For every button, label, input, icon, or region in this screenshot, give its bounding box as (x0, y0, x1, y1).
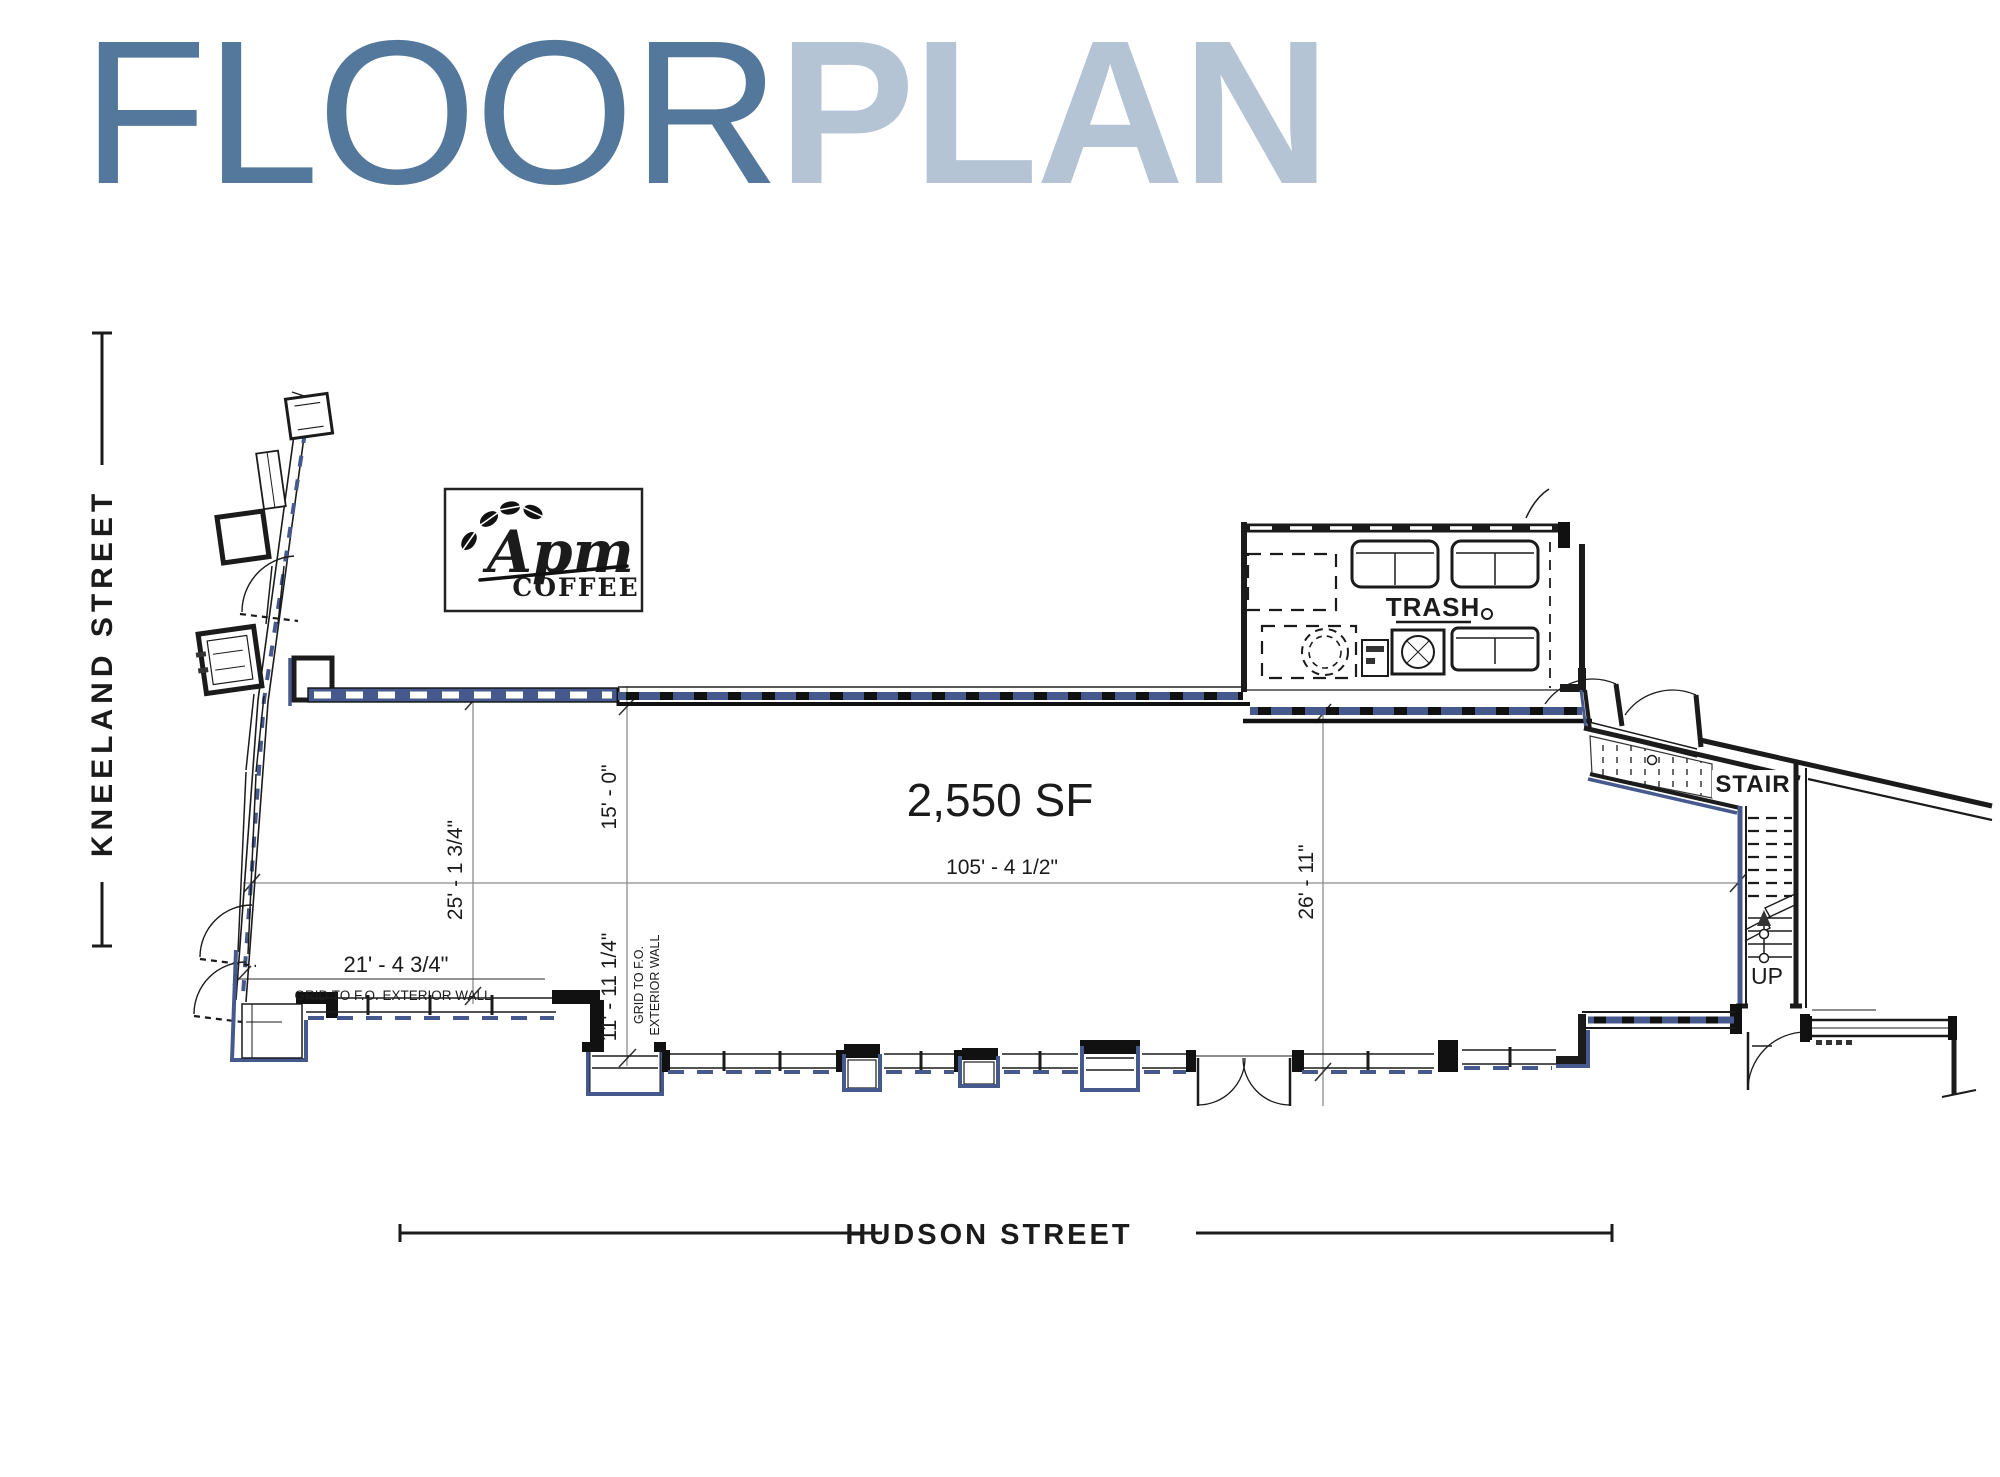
left-wall-mullion-piece (256, 451, 286, 510)
hudson-street-line-right (1196, 1224, 1612, 1242)
hudson-street-line-left (400, 1224, 882, 1242)
right-end-tick (1942, 1090, 1976, 1097)
w6-lines (1142, 1054, 1188, 1068)
dim-21ft: 21' - 4 3/4" (344, 952, 449, 977)
grid-note-v-line1: GRID TO F.O. (632, 946, 646, 1024)
kneeland-street-label: KNEELAND STREET (86, 489, 119, 857)
dim-25ft: 25' - 1 3/4" (444, 820, 467, 920)
left-wall-window-top (285, 393, 332, 438)
floorplan-page: FLOORPLAN KNEELAND STREET HUDSON STREET (0, 0, 2000, 1477)
stair-arrow-node1 (1760, 930, 1769, 939)
left-wall-window-box1 (217, 511, 269, 563)
storefront-wall (232, 950, 1736, 1106)
dim-11ft: 11' - 11 1/4" (598, 933, 621, 1042)
door-swing-arc-lower-left-a (200, 905, 252, 957)
w7-post-l (1296, 1050, 1304, 1072)
grid-note-horizontal: GRID TO F.O. EXTERIOR WALL (294, 988, 492, 1003)
pier-4 (1438, 1040, 1458, 1072)
stair-room-label: STAIR (1715, 771, 1790, 798)
left-exterior-wall (193, 392, 332, 1023)
top-wall (308, 687, 1592, 721)
grid-note-v-line2: EXTERIOR WALL (648, 934, 662, 1035)
street-labels: KNEELAND STREET HUDSON STREET (86, 333, 1612, 1251)
corner-box (242, 1004, 302, 1058)
entry-double-door (1186, 1050, 1302, 1106)
stair: STAIR UP (1584, 728, 1992, 1008)
w3-lines (666, 1054, 838, 1068)
bay-pier-3 (960, 1048, 998, 1086)
dumpster-3 (1452, 628, 1538, 670)
dumpster-2 (1452, 541, 1538, 587)
stair-break-line2 (1745, 905, 1795, 941)
dim-26ft: 26' - 11" (1295, 844, 1318, 919)
hatch-circle (1648, 756, 1657, 765)
floorplan-drawing: KNEELAND STREET HUDSON STREET (0, 0, 2000, 1477)
right-window-ticks (1816, 1040, 1852, 1045)
left-wall-window-box2 (193, 626, 262, 694)
stair-up-label: UP (1751, 963, 1783, 989)
kneeland-street-line-bottom (92, 882, 112, 946)
trash-room: TRASH (1241, 489, 1584, 692)
hudson-street-label: HUDSON STREET (845, 1219, 1132, 1251)
door-leaf-left (1616, 684, 1622, 726)
trash-room-label: TRASH (1386, 592, 1481, 622)
entry-door-arc (1748, 1032, 1806, 1090)
right-corner-step (1556, 1014, 1582, 1060)
right-window-cap-right (1948, 1016, 1957, 1040)
w3-post-l (662, 1050, 670, 1072)
kneeland-street-line-top (92, 333, 112, 465)
entry-right (1730, 1004, 1976, 1097)
trash-label-circle (1482, 609, 1492, 619)
trash-floor-sink (1392, 630, 1444, 674)
trash-leader-curve (1526, 489, 1549, 518)
logo-box: Apm COFFEE (445, 489, 642, 611)
bay-pier-2 (844, 1044, 880, 1090)
trash-dashed-circle-inner (1309, 636, 1341, 668)
right-window-cap-left (1806, 1016, 1812, 1040)
floor-area-label: 2,550 SF (907, 774, 1094, 826)
door-swing-arc-right (1625, 690, 1696, 715)
stair-arrow-node2 (1760, 954, 1769, 963)
stair-treads-dashed (1748, 818, 1792, 896)
trash-dashed-pad-upper (1248, 554, 1336, 610)
trash-cart (1362, 640, 1388, 676)
bay-window-2 (1080, 1040, 1140, 1090)
logo-word: COFFEE (512, 573, 639, 602)
trash-topright-step (1558, 522, 1570, 548)
dumpster-1 (1352, 541, 1438, 587)
dimension-texts: 2,550 SF 105' - 4 1/2" 21' - 4 3/4" GRID… (294, 764, 1318, 1041)
bay-window-1 (582, 1042, 666, 1094)
dim-105ft: 105' - 4 1/2" (946, 856, 1058, 879)
dim-15ft: 15' - 0" (598, 764, 621, 829)
